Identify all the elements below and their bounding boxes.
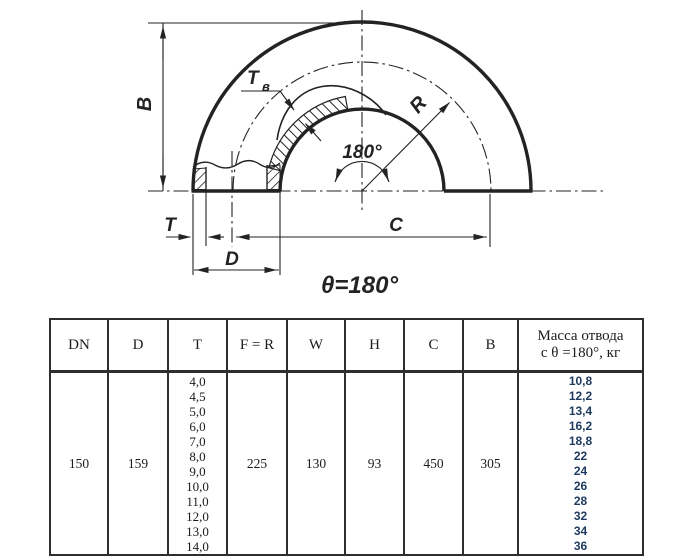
dim-label-tv-subscript: в (262, 79, 270, 94)
col-header-b: B (463, 319, 518, 372)
dim-label-d: D (225, 249, 239, 270)
value-line: 18,8 (519, 434, 642, 449)
cell-c: 450 (404, 372, 463, 556)
col-header-d: D (108, 319, 168, 372)
data-row: 150 159 4,04,55,06,07,08,09,010,011,012,… (50, 372, 643, 556)
value-line: 16,2 (519, 419, 642, 434)
value-line: 12,2 (519, 389, 642, 404)
inner-wall-thickness-hatch (269, 97, 348, 172)
tv-leader-arrow (280, 91, 294, 110)
dim-label-b: B (134, 97, 156, 111)
value-line: 28 (519, 494, 642, 509)
cell-dn: 150 (50, 372, 108, 556)
mass-header-line1: Масса отвода (519, 328, 642, 345)
dimensions-table: DN D T F = R W H C B Масса отвода с θ =1… (49, 318, 644, 556)
cell-w: 130 (287, 372, 345, 556)
value-line: 13,0 (169, 524, 226, 539)
cell-d: 159 (108, 372, 168, 556)
dim-label-t: T (164, 215, 177, 236)
value-line: 14,0 (169, 539, 226, 554)
header-row: DN D T F = R W H C B Масса отвода с θ =1… (50, 319, 643, 372)
mass-header-line2: с θ =180°, кг (519, 345, 642, 362)
diagram-labels: B T D C R T в 180° θ=180° (134, 68, 432, 299)
cell-t-values: 4,04,55,06,07,08,09,010,011,012,013,014,… (168, 372, 227, 556)
value-line: 4,0 (169, 374, 226, 389)
value-line: 36 (519, 539, 642, 554)
value-line: 32 (519, 509, 642, 524)
value-line: 10,0 (169, 479, 226, 494)
value-line: 34 (519, 524, 642, 539)
value-line: 6,0 (169, 419, 226, 434)
cell-mass-values: 10,812,213,416,218,822242628323436 (518, 372, 643, 556)
col-header-t: T (168, 319, 227, 372)
value-line: 8,0 (169, 449, 226, 464)
col-header-w: W (287, 319, 345, 372)
angle-arrow-right (385, 170, 389, 181)
elbow-drawing: B T D C R T в 180° θ=180° (0, 0, 700, 314)
col-header-dn: DN (50, 319, 108, 372)
cell-b: 305 (463, 372, 518, 556)
mass-values-stack: 10,812,213,416,218,822242628323436 (519, 373, 642, 554)
value-line: 9,0 (169, 464, 226, 479)
col-header-mass: Масса отвода с θ =180°, кг (518, 319, 643, 372)
theta-equation-label: θ=180° (321, 272, 398, 299)
value-line: 24 (519, 464, 642, 479)
value-line: 26 (519, 479, 642, 494)
value-line: 7,0 (169, 434, 226, 449)
dim-label-tv: T (247, 68, 260, 89)
value-line: 4,5 (169, 389, 226, 404)
cell-fr: 225 (227, 372, 287, 556)
value-line: 10,8 (519, 374, 642, 389)
dim-label-r: R (406, 92, 432, 118)
page: B T D C R T в 180° θ=180° DN D T F = R W… (0, 0, 700, 560)
value-line: 11,0 (169, 494, 226, 509)
centerlines (148, 10, 606, 247)
col-header-c: C (404, 319, 463, 372)
angle-value-label: 180° (342, 142, 382, 163)
angle-arrow-left (336, 170, 340, 181)
sections (193, 97, 348, 190)
value-line: 13,4 (519, 404, 642, 419)
value-line: 12,0 (169, 509, 226, 524)
dim-label-c: C (389, 215, 403, 236)
value-line: 22 (519, 449, 642, 464)
cell-h: 93 (345, 372, 404, 556)
col-header-fr: F = R (227, 319, 287, 372)
col-header-h: H (345, 319, 404, 372)
value-line: 5,0 (169, 404, 226, 419)
t-values-stack: 4,04,55,06,07,08,09,010,011,012,013,014,… (169, 373, 226, 554)
